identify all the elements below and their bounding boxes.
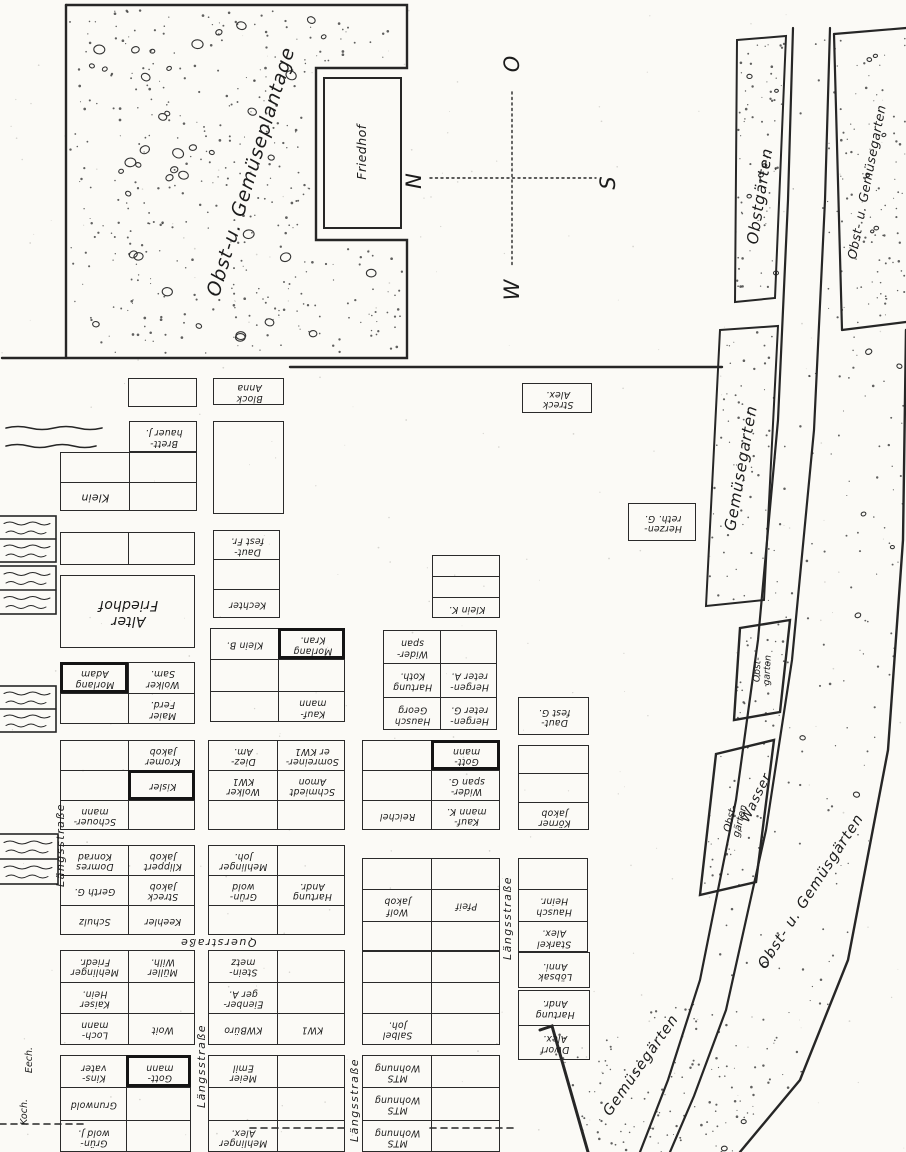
plot-label: Woit <box>129 1014 197 1046</box>
plot-block: Klein <box>60 452 197 511</box>
plot-row-divider <box>519 773 588 774</box>
illegible-handwriting <box>4 841 52 844</box>
plot-block: Löbsak Anni. <box>518 952 590 988</box>
field-squiggle <box>6 445 96 448</box>
illegible-handwriting <box>6 554 46 557</box>
plot-label: Pfeif <box>432 890 501 921</box>
plot-label: Reichel <box>363 801 432 831</box>
illegible-handwriting <box>6 701 46 704</box>
illegible-handwriting <box>6 606 46 609</box>
plot-label: Klein B. <box>211 629 279 660</box>
plot-block: Daut- fest G. <box>518 697 589 735</box>
plot-label: Somreiner- er KW1 <box>278 741 347 771</box>
plot-label: Hergen- reter G. <box>441 698 498 731</box>
illegible-handwriting <box>4 597 50 600</box>
plot-row-divider <box>433 576 499 577</box>
plot-block: Alter Friedhof <box>60 575 195 648</box>
plot-label: Herzen- reth. G. <box>629 504 697 542</box>
plot-label: KW1 <box>278 1014 347 1046</box>
plot-block: Herzen- reth. G. <box>628 503 696 541</box>
plot-block: Kins- vaterGott- mannGrunwoldGrün- wold … <box>60 1055 191 1152</box>
plot-label: Wolker KW1 <box>209 771 278 801</box>
plot-block: Diez- Am.Somreiner- er KW1Wolker KW1Schm… <box>208 740 345 830</box>
illegible-handwriting <box>4 715 50 718</box>
plot-label: Gott- mann <box>432 741 501 771</box>
plot-label: Kisler <box>129 771 197 801</box>
plot-block: Meier EmilMehlinger Alex. <box>208 1055 345 1152</box>
plot-label: Alter Friedhof <box>61 576 196 649</box>
plot-col-divider <box>128 533 129 564</box>
plot-label: MTS Wohnung <box>363 1088 432 1120</box>
plot-label: Wider- span G. <box>432 771 501 801</box>
plot-label: Klein K. <box>433 598 501 619</box>
plot-label: Hartung Andr. <box>519 991 591 1026</box>
plot-block: Block Anna <box>213 378 284 405</box>
plot-label: Müller Wilh. <box>129 951 197 983</box>
plot-label: Morlang Kran. <box>279 629 347 660</box>
street-label: Querstraße <box>147 934 289 950</box>
illegible-handwriting <box>6 724 46 727</box>
street-label: Längsstraße <box>347 1048 363 1152</box>
plot-label: Loch- mann <box>61 1014 129 1046</box>
illegible-handwriting <box>6 850 48 853</box>
plot-label: Grunwold <box>61 1088 127 1120</box>
plot-label: Mehlinger Alex. <box>209 1121 278 1152</box>
compass-letter: W <box>497 275 527 305</box>
compass-letter: N <box>399 166 429 196</box>
plot-label: Starkel Alex. <box>519 922 589 953</box>
plot-block: Daut- fest Fr.Kechter <box>213 530 280 618</box>
plot-block: Streck Alex. <box>522 383 592 413</box>
compass-letter: S <box>593 168 623 198</box>
plot-label: MTS Wohnung <box>363 1121 432 1152</box>
plot-label: Hausch Heinr. <box>519 890 589 921</box>
plot-label: Schouer- mann <box>61 801 129 831</box>
plot-block: Stein- metzEienber- ger A.KWBüroKW1 <box>208 950 345 1045</box>
illegible-handwriting <box>6 582 46 585</box>
plot-label: Stein- metz <box>209 951 278 983</box>
plot-label: Gott- mann <box>127 1056 193 1088</box>
plot-label: Diez- Am. <box>209 741 278 771</box>
illegible-handwriting <box>4 573 50 576</box>
plot-block: Mehlinger Friedr.Müller Wilh.Kaiser Hein… <box>60 950 195 1045</box>
street-label: Längsstraße <box>194 987 210 1145</box>
plot-block: Mehlinger Joh.Grün- woldHartung Andr. <box>208 845 345 935</box>
plot-label: Kauf- mann K. <box>432 801 501 831</box>
illegible-handwriting <box>4 545 50 548</box>
plot-block: Gott- mannWider- span G.ReichelKauf- man… <box>362 740 500 830</box>
plot-label: Hausch Georg <box>384 698 441 731</box>
plot-block: Klein B.Morlang Kran.Kauf- mann <box>210 628 345 722</box>
plot-label: Körner Jakob <box>519 803 590 831</box>
street-label: Längsstraße <box>53 770 69 920</box>
illegible-handwriting <box>4 866 52 869</box>
plot-label: Kromer Jakob <box>129 741 197 771</box>
plot-label: Gerth G. <box>61 876 129 906</box>
plot-label: Streck Alex. <box>523 384 593 414</box>
plot-label: Mehlinger Joh. <box>209 846 278 876</box>
edge-label: Koch. <box>16 1087 34 1137</box>
plot-label: Grün- wold J. <box>61 1121 127 1152</box>
plot-label: Maier Ferd. <box>129 694 197 725</box>
plot-label: Hergen- reter A. <box>441 664 498 697</box>
plot-block: Salbel Joh. <box>362 950 500 1045</box>
plot-label: Wider- span <box>384 631 441 664</box>
illegible-handwriting <box>6 875 48 878</box>
plot-block: Brett- hauer J. <box>129 421 197 452</box>
plot-label: Kechter <box>214 590 281 619</box>
plot-block: Klein K. <box>432 555 500 618</box>
plot-label: Schulz <box>61 906 129 936</box>
cemetery-label: Friedhof <box>332 2 392 302</box>
plot-label: Grün- wold <box>209 876 278 906</box>
plot-block <box>60 532 195 565</box>
plot-label: Schmiedt Amon <box>278 771 347 801</box>
plot-block: Hausch Heinr.Starkel Alex. <box>518 858 588 952</box>
plot-label: MTS Wohnung <box>363 1056 432 1088</box>
illegible-handwriting <box>4 692 50 695</box>
plot-label: Hartung Andr. <box>278 876 347 906</box>
plot-label: Streck Jakob <box>129 876 197 906</box>
plot-label: Daut- fest Fr. <box>214 531 281 560</box>
edge-label: Eech. <box>21 1035 39 1085</box>
plot-label: Löbsak Anni. <box>519 953 591 989</box>
plot-block: Domres KonradKlippert JakobGerth G.Strec… <box>60 845 195 935</box>
plot-label: Meier Emil <box>209 1056 278 1088</box>
plot-label: Wolker Sam. <box>129 663 197 694</box>
plot-label: Morlang Adam <box>61 663 129 694</box>
field-squiggle <box>6 427 102 430</box>
plot-label: Kauf- mann <box>279 692 347 723</box>
plot-block: Wider- spanHartung Koth.Hergen- reter A.… <box>383 630 497 730</box>
plot-block: Kromer JakobKislerSchouer- mann <box>60 740 195 830</box>
plot-label: Keehler <box>129 906 197 936</box>
plot-block <box>128 378 197 407</box>
plot-label: Dworf Alex. <box>519 1026 591 1061</box>
illegible-handwriting <box>6 531 46 534</box>
plot-label: Eienber- ger A. <box>209 983 278 1015</box>
illegible-handwriting <box>4 522 50 525</box>
plot-label: Wolf Jakob <box>363 890 432 921</box>
plot-block: Wolf JakobPfeif <box>362 858 500 952</box>
plot-block <box>213 421 284 514</box>
plot-label: KWBüro <box>209 1014 278 1046</box>
plot-label: Kaiser Hein. <box>61 983 129 1015</box>
plot-label: Block Anna <box>214 379 285 406</box>
plot-label: Brett- hauer J. <box>130 422 198 453</box>
village-map-scan: Block AnnaBrett- hauer J.KleinDaut- fest… <box>0 0 906 1152</box>
plot-label: Kins- vater <box>61 1056 127 1088</box>
plot-label: Daut- fest G. <box>519 698 590 736</box>
compass-letter: O <box>497 49 527 79</box>
plot-label: Klein <box>61 483 130 513</box>
plot-label: Klippert Jakob <box>129 846 197 876</box>
plot-label: Mehlinger Friedr. <box>61 951 129 983</box>
plot-block: Morlang AdamWolker Sam.Maier Ferd. <box>60 662 195 724</box>
plot-block: Körner Jakob <box>518 745 589 830</box>
plot-block: MTS WohnungMTS WohnungMTS Wohnung <box>362 1055 500 1152</box>
plot-label: Hartung Koth. <box>384 664 441 697</box>
plot-label: Salbel Joh. <box>363 1014 432 1046</box>
plot-block: Hartung Andr.Dworf Alex. <box>518 990 590 1060</box>
plot-label: Domres Konrad <box>61 846 129 876</box>
street-label: Längsstraße <box>500 851 516 985</box>
